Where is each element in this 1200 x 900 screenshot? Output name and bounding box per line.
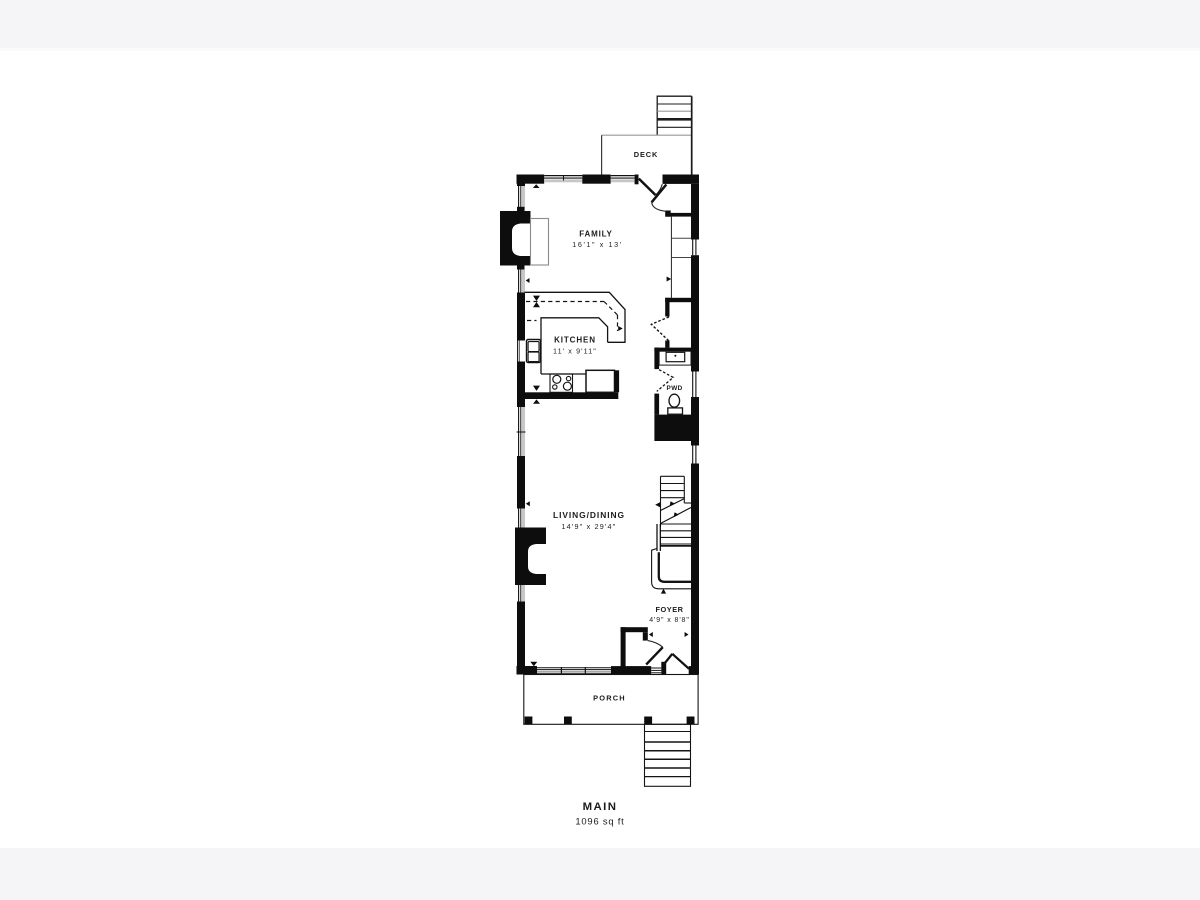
- svg-text:KITCHEN: KITCHEN: [554, 336, 596, 345]
- svg-text:PORCH: PORCH: [593, 694, 626, 703]
- svg-text:DECK: DECK: [634, 150, 659, 159]
- svg-text:14'9" x 29'4": 14'9" x 29'4": [561, 522, 616, 531]
- svg-text:4'9" x 8'8": 4'9" x 8'8": [649, 617, 690, 624]
- svg-text:FOYER: FOYER: [656, 605, 684, 614]
- svg-text:PWD: PWD: [667, 385, 683, 392]
- svg-text:FAMILY: FAMILY: [579, 229, 612, 238]
- svg-text:LIVING/DINING: LIVING/DINING: [553, 510, 625, 520]
- svg-text:16'1" x 13': 16'1" x 13': [572, 240, 622, 249]
- svg-text:1096 sq ft: 1096 sq ft: [575, 816, 624, 827]
- svg-text:11' x 9'11": 11' x 9'11": [553, 347, 597, 356]
- svg-text:MAIN: MAIN: [583, 801, 618, 813]
